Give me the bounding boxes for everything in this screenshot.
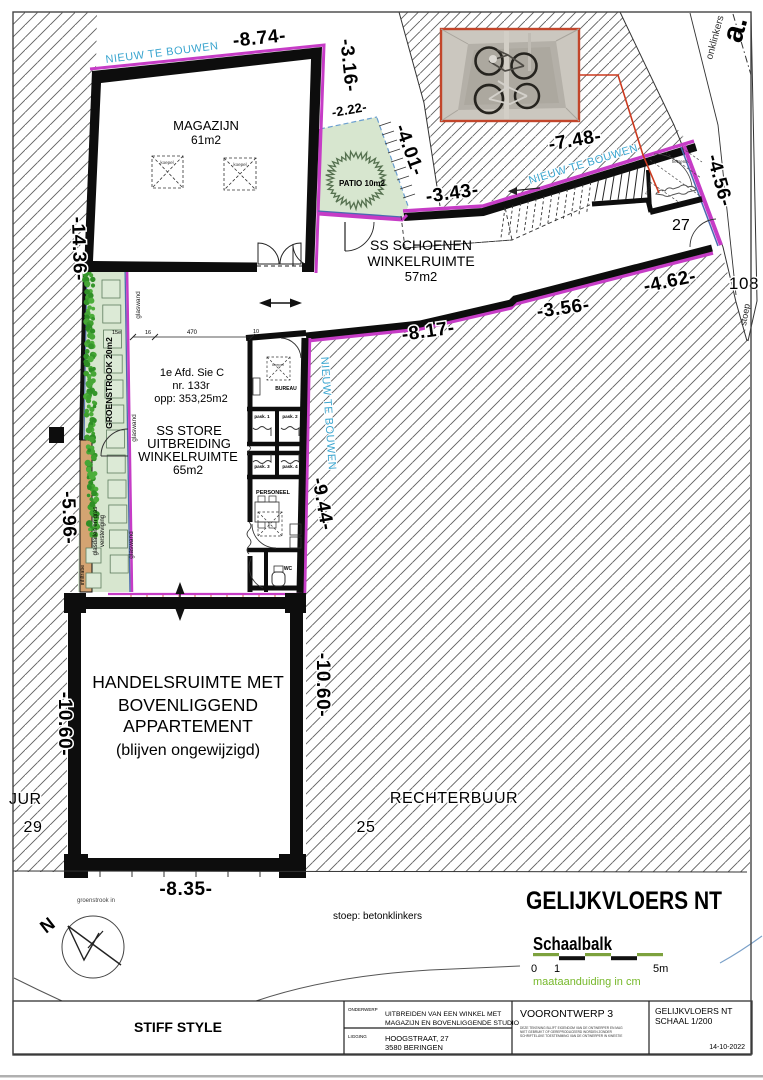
svg-text:BOVENLIGGEND: BOVENLIGGEND [118,695,258,715]
svg-text:3580 BERINGEN: 3580 BERINGEN [385,1043,443,1052]
svg-text:koepel: koepel [233,162,246,167]
svg-text:29: 29 [24,819,43,836]
svg-text:infiltratie: infiltratie [80,565,86,585]
svg-text:pask. 2: pask. 2 [282,414,298,419]
svg-text:MAGAZIJN: MAGAZIJN [173,118,239,133]
svg-text:(blijven ongewijzigd): (blijven ongewijzigd) [116,742,260,759]
svg-text:glaswand: glaswand [131,414,138,442]
svg-text:pask. 1: pask. 1 [254,414,270,419]
svg-text:-10.60-: -10.60- [54,692,75,756]
svg-text:BUREAU: BUREAU [275,386,297,392]
svg-text:15e: 15e [112,330,121,336]
svg-text:opp: 353,25m2: opp: 353,25m2 [154,393,227,405]
svg-text:stoep: betonklinkers: stoep: betonklinkers [333,911,422,922]
svg-text:61m2: 61m2 [191,133,221,147]
svg-text:JUR: JUR [9,791,42,808]
svg-text:16: 16 [145,330,151,336]
svg-text:GELIJKVLOERS NT: GELIJKVLOERS NT [526,887,722,915]
svg-text:glasdallen en gras: glasdallen en gras [93,507,99,556]
svg-text:25: 25 [357,819,376,836]
svg-text:470: 470 [187,330,198,336]
svg-text:-10.60-: -10.60- [312,653,333,717]
svg-text:1e Afd. Sie C: 1e Afd. Sie C [160,367,224,379]
svg-text:UITBREIDEN VAN EEN WINKEL MET: UITBREIDEN VAN EEN WINKEL MET [385,1011,501,1018]
svg-text:pask. 4: pask. 4 [282,464,298,469]
svg-text:maataanduiding in cm: maataanduiding in cm [533,976,641,988]
svg-text:27: 27 [672,217,690,234]
svg-text:5m: 5m [653,963,668,975]
svg-text:pask. 3: pask. 3 [254,464,270,469]
svg-text:SCHRIFTELIJKE TOESTEMMING VAN: SCHRIFTELIJKE TOESTEMMING VAN DE ONTWERP… [520,1034,622,1038]
svg-text:-5.96-: -5.96- [57,491,80,545]
svg-text:STIFF STYLE: STIFF STYLE [134,1019,222,1035]
svg-text:versteviging: versteviging [100,515,106,547]
svg-text:WINKELRUIMTE: WINKELRUIMTE [367,253,474,269]
svg-text:-14.36-: -14.36- [67,216,90,281]
svg-text:-8.35-: -8.35- [159,879,212,900]
svg-text:MAGAZIJN EN BOVENLIGGENDE STUD: MAGAZIJN EN BOVENLIGGENDE STUDIO [385,1020,519,1027]
svg-text:groenstrook in: groenstrook in [77,898,115,904]
svg-text:PATIO 10m2: PATIO 10m2 [339,179,385,188]
svg-text:fietsenb.: fietsenb. [672,159,689,164]
svg-text:GROENSTROOK 20m2: GROENSTROOK 20m2 [104,337,114,429]
svg-text:PERSONEEL: PERSONEEL [256,490,291,496]
svg-text:HOOGSTRAAT, 27: HOOGSTRAAT, 27 [385,1034,449,1043]
svg-text:glaswand: glaswand [135,291,142,319]
svg-text:RECHTERBUUR: RECHTERBUUR [390,790,518,807]
svg-text:glaswand: glaswand [128,531,135,559]
svg-text:HANDELSRUIMTE MET: HANDELSRUIMTE MET [92,672,284,692]
svg-text:SCHAAL 1/200: SCHAAL 1/200 [655,1016,713,1026]
svg-text:65m2: 65m2 [173,463,203,477]
svg-text:SS SCHOENEN: SS SCHOENEN [370,237,472,253]
svg-text:57m2: 57m2 [405,269,438,284]
svg-text:Schaalbalk: Schaalbalk [533,934,613,954]
svg-text:LIGGING: LIGGING [348,1034,367,1039]
svg-text:WC: WC [284,566,293,572]
svg-text:0: 0 [531,963,537,975]
svg-text:ONDERWERP: ONDERWERP [348,1007,378,1012]
svg-text:10: 10 [253,329,259,335]
svg-text:GELIJKVLOERS NT: GELIJKVLOERS NT [655,1006,732,1016]
svg-text:nr. 133r: nr. 133r [172,380,210,392]
svg-text:14-10-2022: 14-10-2022 [709,1044,745,1051]
svg-text:koepel: koepel [272,362,284,367]
svg-text:APPARTEMENT: APPARTEMENT [123,716,253,736]
svg-text:WINKELRUIMTE: WINKELRUIMTE [138,449,238,464]
svg-text:108: 108 [729,274,759,293]
svg-text:VOORONTWERP 3: VOORONTWERP 3 [520,1008,613,1020]
svg-text:1: 1 [554,963,560,975]
svg-text:koepel: koepel [160,160,173,165]
